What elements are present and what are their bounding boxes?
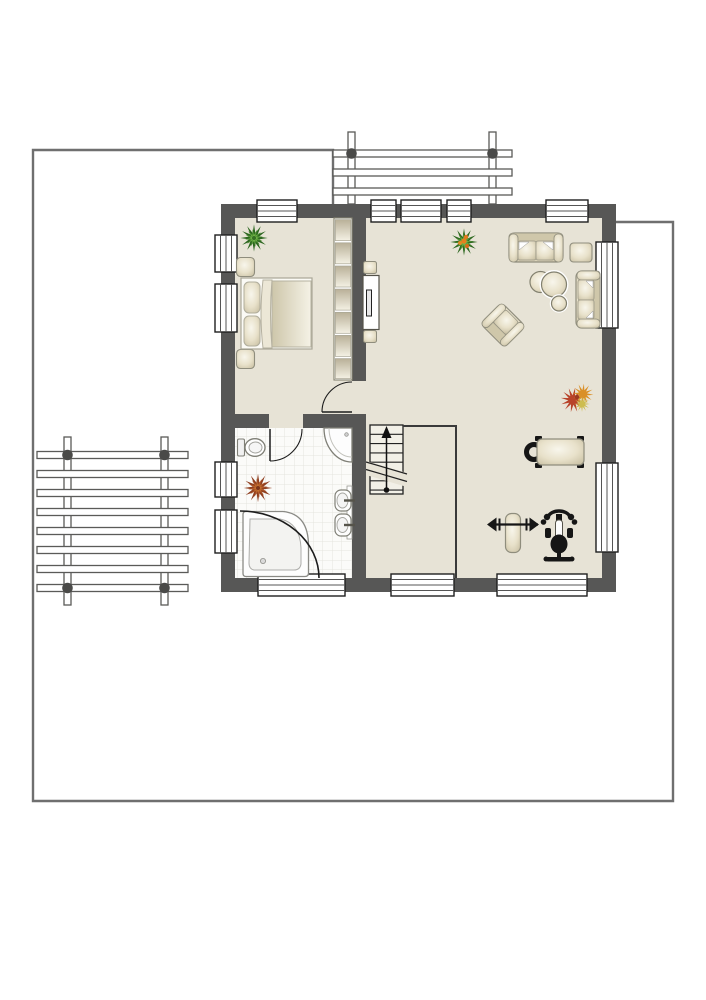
duvet [272,281,311,347]
duvet-fold [261,280,272,348]
sofa [509,233,563,262]
tv-screen [367,290,372,316]
bed-pillow [244,282,260,313]
window [401,200,441,222]
toilet [238,439,266,457]
double-bed [241,278,312,349]
window [497,574,587,596]
shower-drain [345,433,349,437]
window [447,200,471,222]
top-balcony-railing [333,132,512,204]
window [257,200,297,222]
floor-plan-canvas [0,0,706,1000]
staircase [366,425,407,494]
window [596,463,618,552]
loveseat [576,271,600,328]
window [258,574,345,596]
bed-pillow [244,316,260,346]
entrance-window [391,574,454,596]
deck-post [64,437,71,605]
side-table [570,243,592,262]
deck-post [161,437,168,605]
left-pergola-deck [37,437,188,605]
cabinet [364,262,377,274]
window [215,284,237,332]
nightstand [237,258,255,277]
nightstand [237,350,255,369]
shelf-wardrobe [334,218,352,380]
window [215,462,237,497]
floor-plan-page [0,0,706,1000]
window [371,200,396,222]
tub-drain [260,558,265,563]
cabinet [364,331,377,343]
windows-bottom [258,574,587,596]
window [215,235,237,272]
window [215,510,237,553]
window [546,200,588,222]
